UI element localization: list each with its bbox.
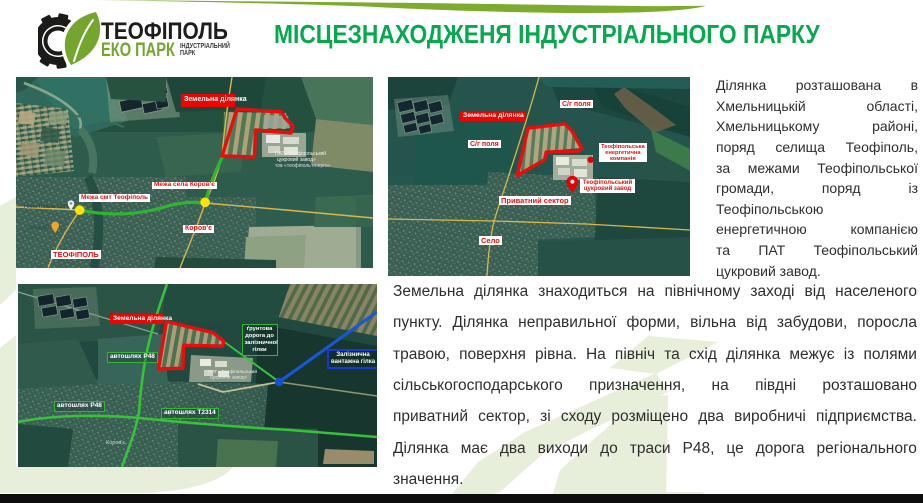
svg-text:БОНСАЙ: БОНСАЙ [28, 224, 50, 232]
svg-text:Нова Пошта №11: Нова Пошта №11 [24, 204, 69, 210]
svg-text:тов «теофіполь енерго»: тов «теофіполь енерго» [275, 163, 331, 169]
svg-text:Коров'є: Коров'є [106, 440, 125, 446]
svg-text:цукровий завод»: цукровий завод» [277, 156, 316, 163]
svg-text:цукровий завод»: цукровий завод» [210, 374, 248, 381]
svg-text:ПАТ «Теофіпольський: ПАТ «Теофіпольський [275, 150, 326, 157]
svg-text:ПАТ «Теофіпольський: ПАТ «Теофіпольський [208, 368, 257, 375]
